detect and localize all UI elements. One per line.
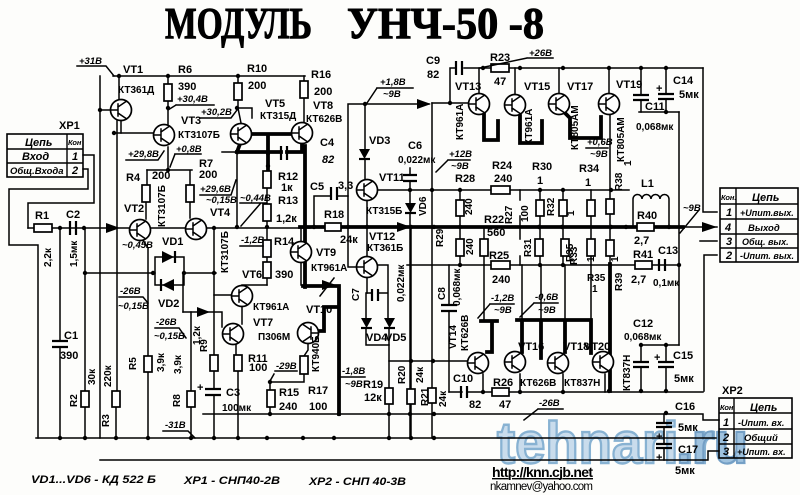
svg-text:VT1: VT1: [123, 64, 143, 76]
svg-text:24к: 24к: [438, 390, 449, 407]
svg-text:R4: R4: [126, 172, 141, 184]
svg-text:C15: C15: [673, 350, 693, 362]
svg-text:Кон: Кон: [720, 403, 734, 412]
svg-text:R17: R17: [308, 385, 328, 397]
svg-text:100: 100: [520, 205, 531, 222]
svg-text:VT15: VT15: [524, 81, 550, 93]
svg-text:~9В: ~9В: [683, 203, 701, 214]
svg-text:VT7: VT7: [253, 317, 273, 329]
svg-text:КТ961А: КТ961А: [311, 263, 347, 274]
svg-text:C13: C13: [658, 245, 678, 257]
svg-text:1: 1: [537, 175, 543, 187]
svg-text:5мк: 5мк: [675, 465, 695, 477]
svg-text:R32: R32: [546, 197, 557, 216]
svg-text:C5: C5: [310, 181, 324, 193]
svg-text:+29,6В: +29,6В: [200, 184, 231, 195]
svg-text:390: 390: [178, 81, 196, 93]
svg-text:nkamnev@yahoo.com: nkamnev@yahoo.com: [490, 481, 593, 493]
svg-text:R13: R13: [278, 195, 298, 207]
svg-text:82: 82: [469, 399, 481, 411]
svg-text:1: 1: [723, 417, 729, 429]
svg-text:КТ961А: КТ961А: [524, 109, 535, 145]
svg-text:ХР2: ХР2: [722, 385, 743, 397]
svg-text:-1,8В: -1,8В: [342, 366, 365, 377]
svg-text:1,2к: 1,2к: [276, 213, 297, 225]
svg-text:0,068мк: 0,068мк: [452, 268, 463, 306]
svg-text:2,2к: 2,2к: [43, 247, 54, 267]
svg-text:VT5: VT5: [265, 98, 285, 110]
svg-text:VT3: VT3: [181, 115, 201, 127]
svg-text:R40: R40: [637, 210, 657, 222]
svg-text:~9В: ~9В: [494, 305, 512, 316]
svg-text:ХР1 - СНП40-2В: ХР1 - СНП40-2В: [183, 475, 280, 487]
svg-text:~0,15В: ~0,15В: [154, 331, 185, 342]
svg-text:3,3: 3,3: [338, 180, 353, 192]
svg-text:82: 82: [322, 154, 334, 166]
svg-text:R25: R25: [489, 250, 509, 262]
svg-text:КТ940Б: КТ940Б: [311, 336, 322, 372]
svg-text:C6: C6: [408, 140, 422, 152]
svg-text:-0,6В: -0,6В: [535, 292, 558, 303]
svg-text:240: 240: [492, 274, 510, 286]
svg-text:VD2: VD2: [158, 298, 179, 310]
svg-text:+Uпит.вых.: +Uпит.вых.: [740, 208, 794, 218]
svg-text:КТ3107Б: КТ3107Б: [220, 231, 231, 273]
svg-text:R24: R24: [492, 160, 513, 172]
svg-text:+1,8В: +1,8В: [380, 77, 406, 88]
svg-text:3,9к: 3,9к: [173, 354, 184, 374]
svg-text:R16: R16: [311, 69, 331, 81]
svg-text:-26В: -26В: [156, 317, 177, 328]
svg-text:VT10: VT10: [306, 304, 332, 316]
svg-text:ХР1: ХР1: [59, 120, 80, 132]
svg-text:100: 100: [249, 362, 267, 374]
svg-text:C7: C7: [351, 288, 362, 301]
svg-text:VD6: VD6: [418, 196, 429, 216]
svg-text:R41: R41: [633, 249, 653, 261]
svg-text:+: +: [197, 382, 203, 394]
svg-text:VT13: VT13: [455, 81, 481, 93]
svg-text:Общий: Общий: [744, 433, 778, 444]
svg-text:+: +: [656, 431, 662, 443]
svg-text:R19: R19: [363, 379, 383, 391]
svg-text:R5: R5: [128, 357, 139, 370]
svg-text:КТ3107Б: КТ3107Б: [157, 185, 168, 227]
svg-text:220к: 220к: [103, 364, 114, 387]
svg-text:ХР2 - СНП 40-3В: ХР2 - СНП 40-3В: [308, 476, 406, 488]
svg-text:390: 390: [60, 350, 78, 362]
svg-text:КТ961А: КТ961А: [455, 104, 466, 140]
svg-text:VT12: VT12: [369, 231, 395, 243]
svg-text:VT11: VT11: [379, 172, 405, 184]
svg-text:200: 200: [152, 170, 170, 182]
svg-text:R10: R10: [247, 63, 267, 75]
svg-text:24к: 24к: [340, 234, 358, 246]
svg-text:47: 47: [494, 76, 506, 88]
svg-text:R8: R8: [172, 394, 183, 407]
svg-text:КТ361Д: КТ361Д: [118, 85, 154, 96]
svg-text:C4: C4: [320, 137, 335, 149]
svg-text:1к: 1к: [281, 182, 293, 194]
svg-text:Выход: Выход: [748, 223, 780, 234]
svg-text:0,1мк: 0,1мк: [653, 278, 680, 289]
svg-text:Цепь: Цепь: [25, 137, 52, 149]
svg-text:390: 390: [275, 269, 293, 281]
svg-text:C10: C10: [453, 373, 473, 385]
svg-text:~0,15В: ~0,15В: [206, 195, 237, 206]
svg-text:КТ626В: КТ626В: [460, 315, 471, 351]
svg-text:100: 100: [309, 401, 327, 413]
svg-text:C1: C1: [64, 330, 78, 342]
svg-text:2,7: 2,7: [634, 235, 649, 247]
svg-text:МОДУЛЬ: МОДУЛЬ: [165, 0, 312, 48]
svg-text:240: 240: [465, 238, 476, 255]
svg-text:VT14: VT14: [448, 325, 459, 349]
svg-text:82: 82: [427, 69, 439, 81]
svg-text:24к: 24к: [415, 366, 426, 383]
svg-text:47: 47: [499, 399, 511, 411]
svg-text:1: 1: [566, 210, 577, 216]
svg-text:100мк: 100мк: [222, 403, 252, 414]
svg-text:R3: R3: [101, 414, 112, 427]
svg-text:R26: R26: [493, 377, 513, 389]
svg-text:КТ805АМ: КТ805АМ: [570, 105, 581, 150]
svg-text:R20: R20: [397, 365, 408, 384]
svg-text:0,068мк: 0,068мк: [636, 122, 674, 133]
svg-text:C11: C11: [645, 101, 665, 113]
svg-text:R14: R14: [274, 236, 295, 248]
svg-text:~9В: ~9В: [590, 149, 608, 160]
svg-text:C2: C2: [66, 209, 80, 221]
svg-text:R30: R30: [532, 161, 552, 173]
svg-text:VT19: VT19: [616, 79, 642, 91]
svg-text:240: 240: [464, 198, 475, 215]
svg-text:+29,8В: +29,8В: [128, 149, 159, 160]
svg-text:-Uпит. вх.: -Uпит. вх.: [738, 418, 784, 428]
svg-text:~9В: ~9В: [451, 161, 469, 172]
svg-text:3: 3: [723, 446, 729, 458]
svg-text:-1,2В: -1,2В: [491, 293, 514, 304]
svg-text:КТ3107Б: КТ3107Б: [178, 130, 220, 141]
svg-text:200: 200: [314, 86, 332, 98]
svg-text:R21: R21: [420, 387, 431, 406]
svg-text:2: 2: [722, 432, 729, 444]
svg-text:R28: R28: [455, 173, 475, 185]
svg-text:КТ361Б: КТ361Б: [367, 243, 403, 254]
svg-text:+30,2В: +30,2В: [201, 107, 232, 118]
svg-text:КТ837Н: КТ837Н: [622, 355, 633, 391]
svg-text:Вход: Вход: [22, 151, 49, 163]
svg-text:VT9: VT9: [316, 247, 336, 259]
svg-text:+0,6В: +0,6В: [587, 137, 613, 148]
svg-text:VT20: VT20: [584, 341, 610, 353]
svg-text:Общ. вых.: Общ. вых.: [742, 237, 789, 247]
svg-text:C17: C17: [678, 444, 698, 456]
svg-text:R29: R29: [435, 228, 446, 247]
svg-text:-31В: -31В: [165, 420, 186, 431]
svg-text:R6: R6: [178, 64, 192, 76]
svg-text:Кон: Кон: [68, 138, 82, 147]
svg-text:2,7: 2,7: [631, 274, 646, 286]
svg-text:Общ.Входа: Общ.Входа: [10, 166, 64, 177]
svg-text:1: 1: [592, 284, 598, 295]
svg-text:~9В: ~9В: [538, 305, 556, 316]
svg-text:3: 3: [726, 236, 732, 248]
svg-text:1: 1: [72, 151, 78, 163]
svg-text:560: 560: [487, 227, 505, 239]
svg-text:1: 1: [585, 177, 591, 189]
svg-text:5мк: 5мк: [674, 373, 694, 385]
svg-text:1: 1: [610, 256, 621, 262]
svg-text:КТ626В: КТ626В: [306, 114, 342, 125]
svg-text:VT16: VT16: [518, 341, 544, 353]
svg-text:R27: R27: [504, 205, 515, 224]
svg-text:КТ315Б: КТ315Б: [366, 206, 402, 217]
svg-text:УНЧ-50 -8: УНЧ-50 -8: [347, 0, 544, 48]
svg-text:VT4: VT4: [210, 207, 231, 219]
svg-text:R38: R38: [614, 172, 625, 191]
svg-text:+12В: +12В: [449, 149, 472, 160]
svg-text:C3: C3: [226, 387, 240, 399]
svg-text:R2: R2: [69, 394, 80, 407]
svg-text:КТ626В: КТ626В: [520, 378, 556, 389]
svg-text:+30,4В: +30,4В: [177, 94, 208, 105]
svg-text:VT6: VT6: [242, 269, 262, 281]
svg-text:-1,2В: -1,2В: [241, 235, 264, 246]
svg-text:C14: C14: [673, 75, 694, 87]
svg-text:5мк: 5мк: [679, 89, 699, 101]
svg-text:0,022мк: 0,022мк: [396, 264, 407, 302]
svg-text:R31: R31: [523, 238, 534, 257]
svg-text:VD5: VD5: [385, 332, 406, 344]
svg-text:П306М: П306М: [258, 332, 290, 343]
svg-text:1: 1: [726, 207, 732, 219]
svg-text:Цепь: Цепь: [750, 402, 777, 414]
svg-text:КТ805АМ: КТ805АМ: [616, 117, 627, 162]
svg-text:-26В: -26В: [120, 286, 141, 297]
svg-text:КТ315Д: КТ315Д: [260, 111, 296, 122]
svg-text:R15: R15: [279, 387, 299, 399]
svg-text:VT8: VT8: [313, 100, 333, 112]
svg-text:+: +: [656, 83, 662, 95]
svg-text:R22: R22: [484, 214, 504, 226]
svg-text:C8: C8: [437, 287, 448, 300]
svg-text:R39: R39: [614, 272, 625, 291]
svg-text:240: 240: [494, 173, 512, 185]
svg-text:+: +: [654, 352, 660, 364]
svg-text:0,022мк: 0,022мк: [398, 155, 436, 166]
svg-text:~9В: ~9В: [345, 379, 363, 390]
svg-text:VD3: VD3: [369, 135, 390, 147]
svg-text:2: 2: [725, 250, 732, 262]
svg-text:4: 4: [724, 222, 731, 234]
svg-text:2: 2: [71, 165, 78, 177]
svg-text:Кон.: Кон.: [721, 193, 737, 202]
svg-text:200: 200: [248, 80, 266, 92]
svg-text:1: 1: [586, 256, 597, 262]
svg-text:C9: C9: [426, 55, 440, 67]
svg-text:240: 240: [279, 401, 297, 413]
svg-text:12к: 12к: [364, 392, 382, 404]
svg-text:R18: R18: [324, 209, 344, 221]
svg-text:R35: R35: [587, 273, 606, 284]
svg-text:+Uпит. вх.: +Uпит. вх.: [737, 447, 786, 457]
svg-text:1,5мк: 1,5мк: [69, 240, 80, 267]
svg-text:КТ837Н: КТ837Н: [564, 378, 600, 389]
svg-text:1,2к: 1,2к: [192, 325, 203, 345]
svg-text:~0,15В: ~0,15В: [118, 301, 149, 312]
svg-text:5мк: 5мк: [678, 422, 698, 434]
svg-text:200: 200: [199, 169, 217, 181]
svg-text:0,068мк: 0,068мк: [624, 332, 662, 343]
svg-text:R1: R1: [35, 210, 49, 222]
svg-text:1: 1: [623, 160, 634, 166]
svg-text:C12: C12: [633, 318, 653, 330]
svg-text:+: +: [656, 452, 662, 464]
svg-text:R35: R35: [565, 243, 576, 262]
svg-text:30к: 30к: [87, 368, 98, 385]
svg-text:http://knn.cjb.net: http://knn.cjb.net: [492, 464, 593, 480]
svg-text:КТ961А: КТ961А: [253, 302, 289, 313]
svg-text:Цепь: Цепь: [752, 192, 779, 204]
svg-text:VD1...VD6 - КД 522 Б: VD1...VD6 - КД 522 Б: [31, 474, 156, 486]
svg-text:VT2: VT2: [124, 203, 144, 215]
svg-text:VT17: VT17: [567, 81, 593, 93]
svg-text:3,9к: 3,9к: [156, 352, 167, 372]
svg-text:-26В: -26В: [539, 398, 560, 409]
svg-text:R23: R23: [490, 52, 510, 64]
svg-text:L1: L1: [641, 178, 654, 190]
svg-text:-Uпит. вых.: -Uпит. вых.: [740, 251, 794, 261]
svg-text:R34: R34: [579, 163, 600, 175]
svg-text:~0,45В: ~0,45В: [122, 240, 153, 251]
svg-text:C16: C16: [675, 401, 695, 413]
svg-text:VD1: VD1: [162, 236, 183, 248]
svg-text:~9В: ~9В: [383, 89, 401, 100]
